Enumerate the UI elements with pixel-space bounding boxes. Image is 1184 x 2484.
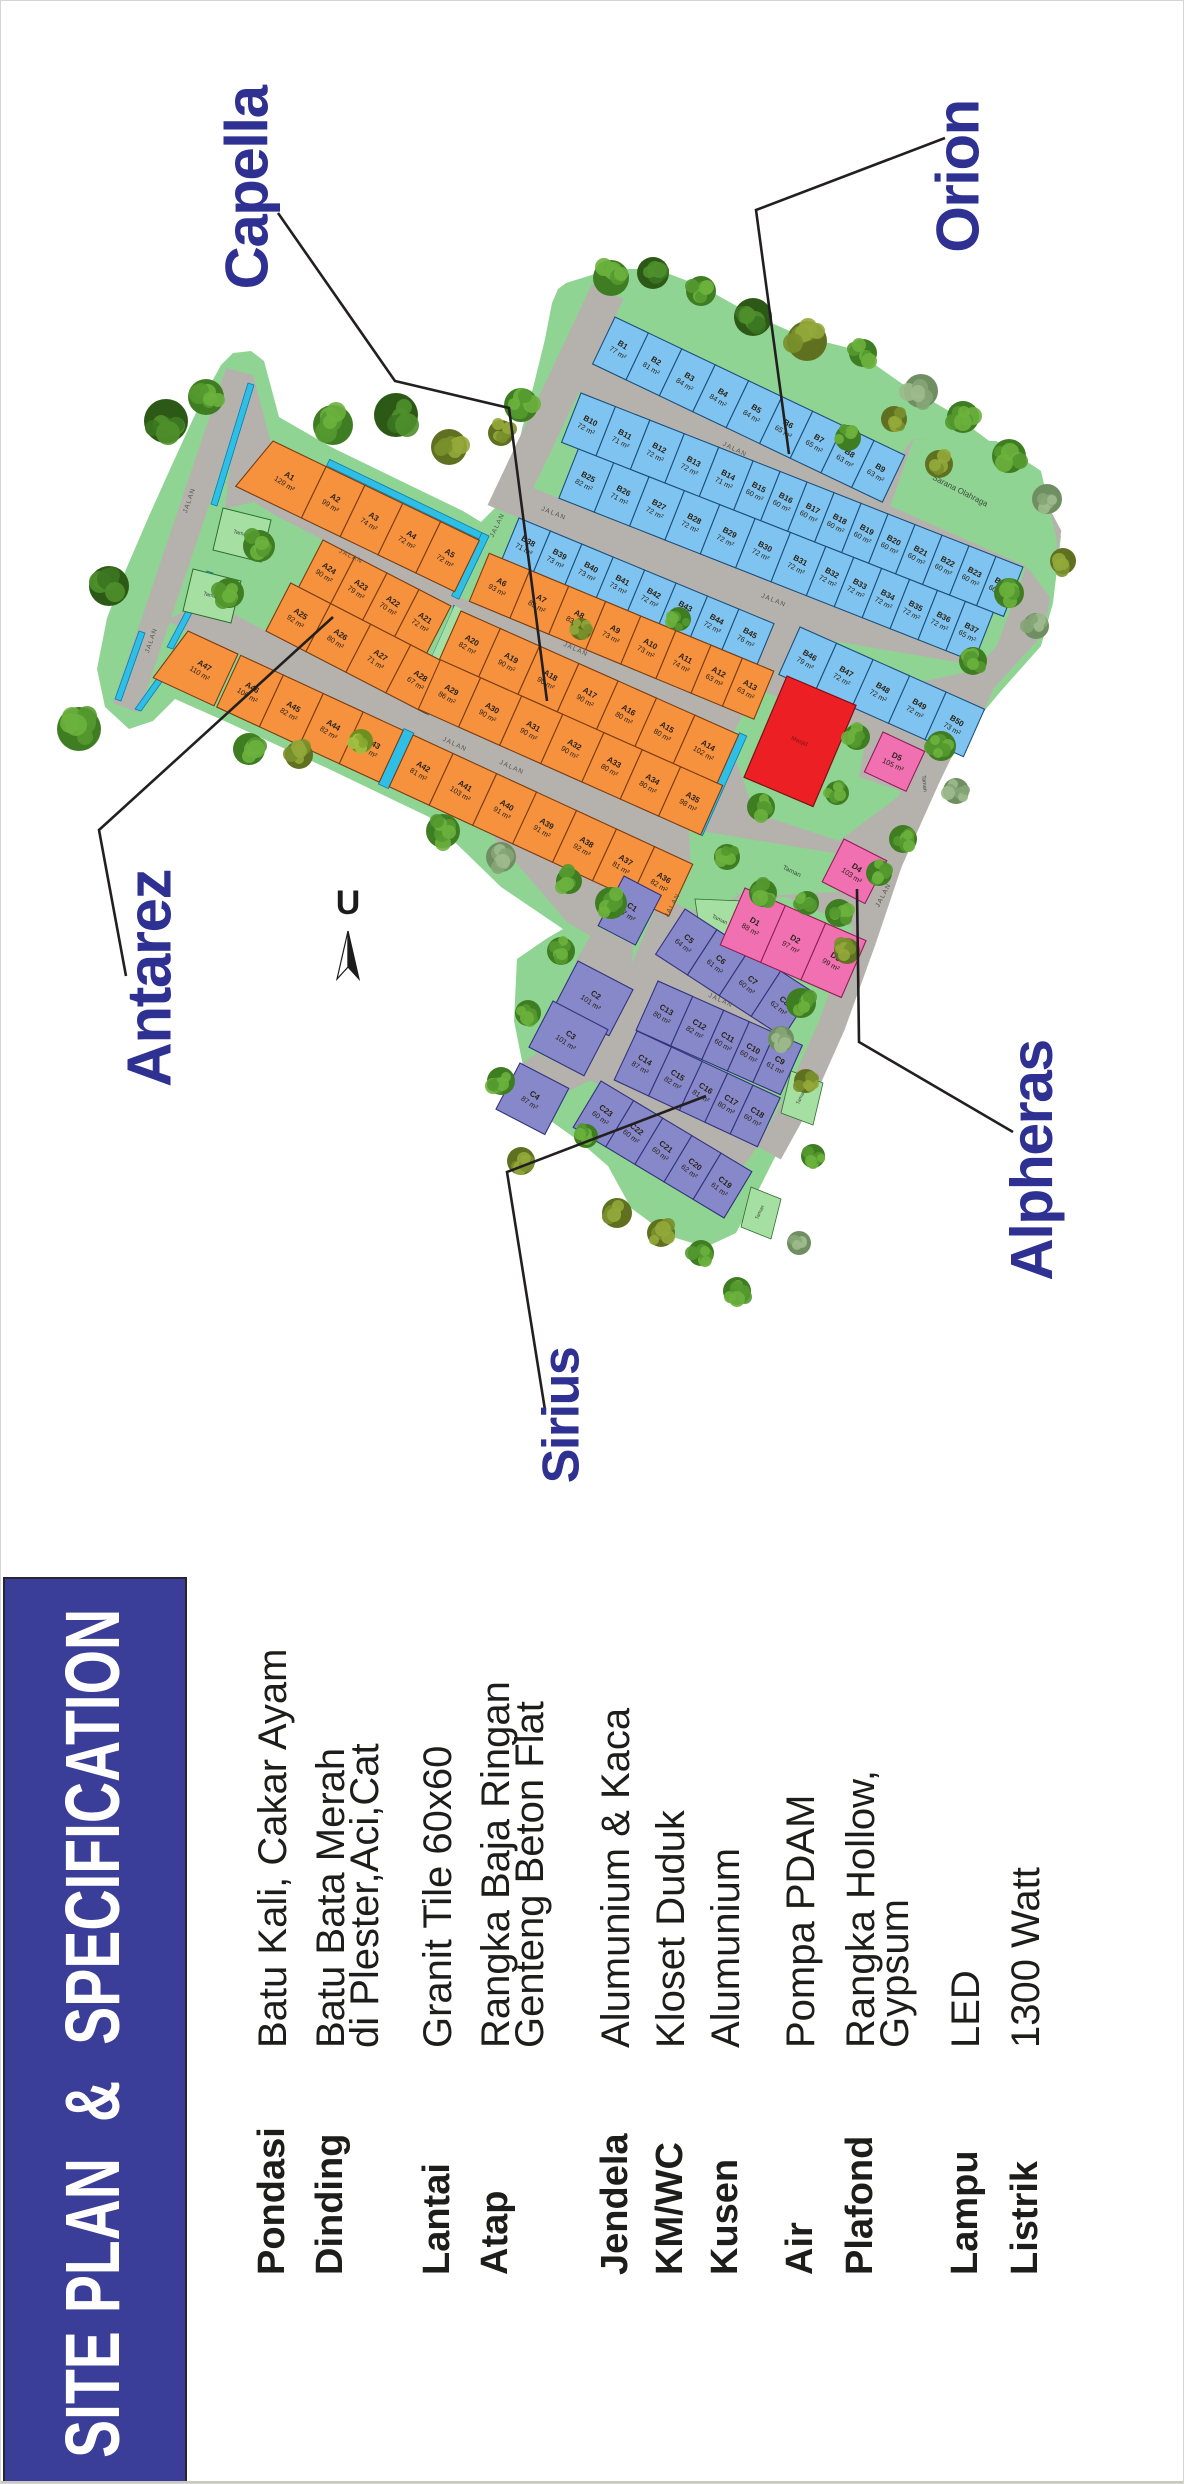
svg-text:Alpheras: Alpheras (999, 1040, 1065, 1280)
svg-text:Sirius: Sirius (533, 1348, 591, 1484)
svg-text:Capella: Capella (214, 84, 281, 289)
svg-text:Orion: Orion (925, 100, 992, 253)
svg-text:Antarez: Antarez (116, 870, 185, 1087)
svg-text:U: U (336, 884, 361, 922)
